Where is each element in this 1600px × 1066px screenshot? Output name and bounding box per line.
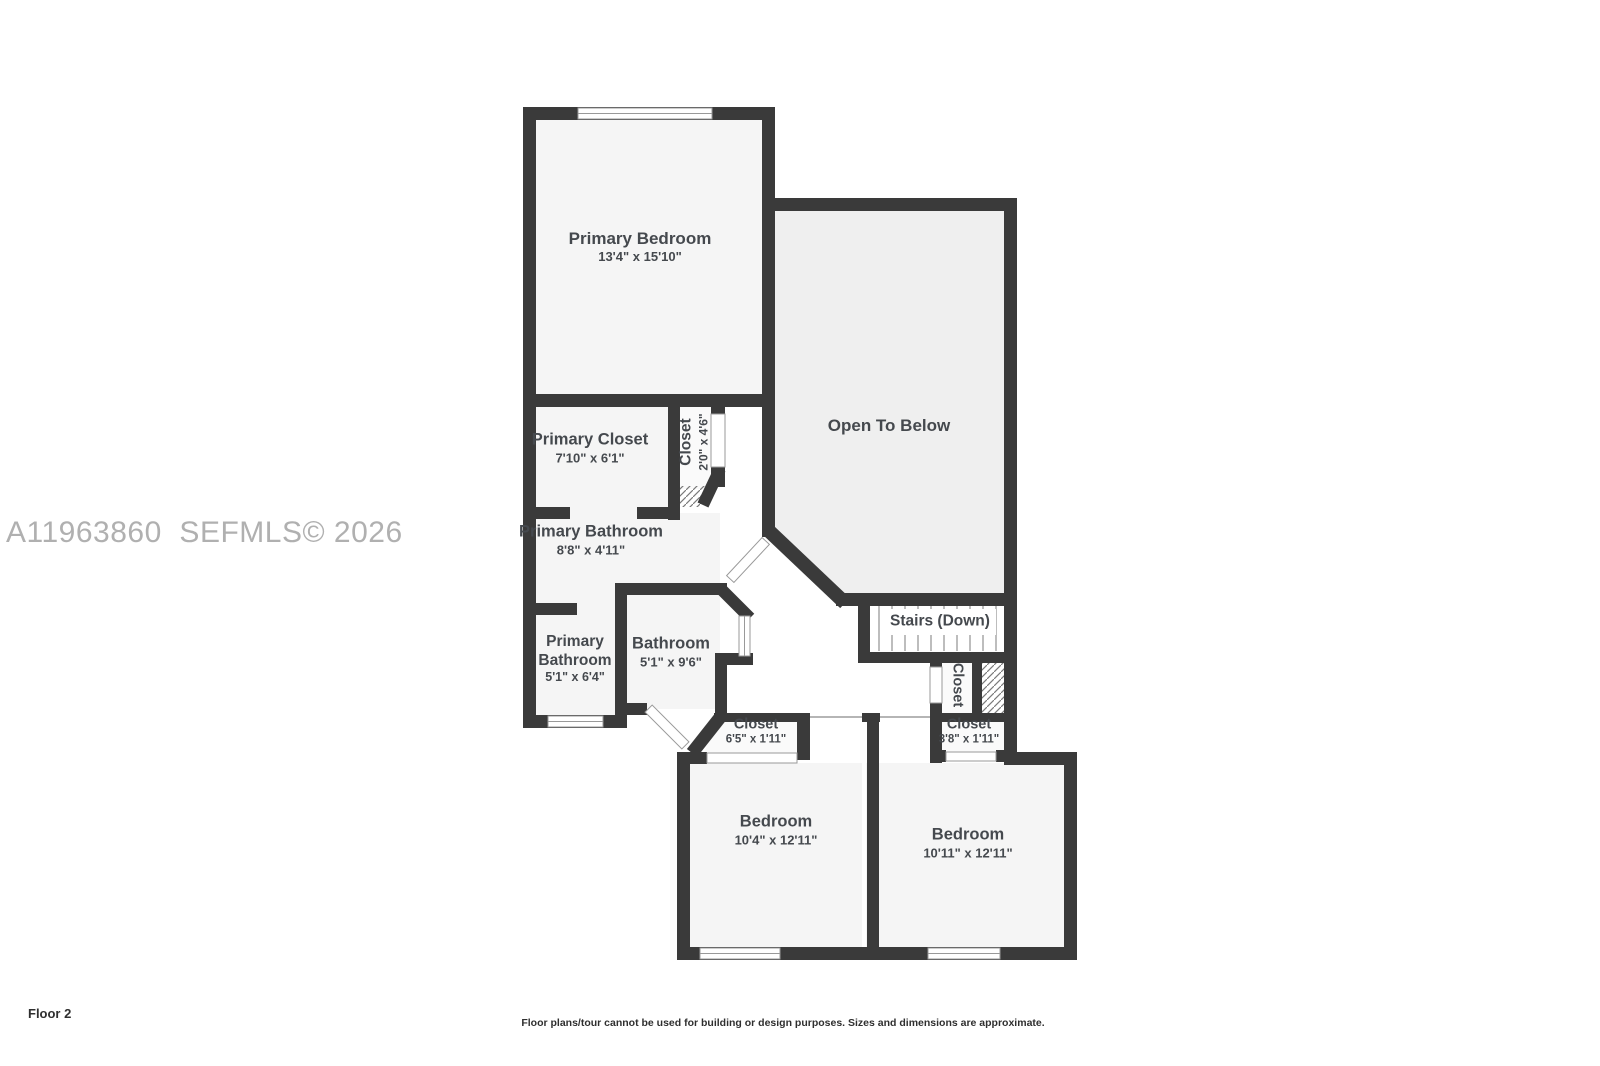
wall-segment (930, 657, 942, 667)
room-dims: 6'5" x 1'11" (726, 734, 787, 748)
open-to-below-floor (770, 204, 1010, 599)
sliding-door-symbol (707, 753, 797, 763)
room-dims: 3'8" x 1'11" (939, 734, 1000, 748)
closet-bedroom-label: Closet 3'8" x 1'11" (939, 714, 1000, 747)
wall-segment (858, 597, 870, 658)
room-dims: 10'11" x 12'11" (923, 845, 1012, 861)
stairs-label: Stairs (Down) (890, 613, 990, 632)
window-symbol (700, 948, 780, 959)
wall-segment (862, 713, 880, 722)
room-dims: 13'4" x 15'10" (569, 249, 712, 265)
primary-closet-label: Primary Closet 7'10" x 6'1" (532, 430, 648, 465)
open-to-below-label: Open To Below (828, 416, 950, 436)
primary-bedroom-label: Primary Bedroom 13'4" x 15'10" (569, 229, 712, 265)
room-dims: 5'1" x 9'6" (632, 654, 710, 670)
floor-plan-page: Primary Bedroom 13'4" x 15'10" Open To B… (0, 0, 1600, 1066)
wall-segment (615, 583, 727, 595)
bedroom-right-label: Bedroom 10'11" x 12'11" (923, 825, 1012, 860)
wall-segment (615, 703, 647, 715)
room-name: Bedroom (932, 825, 1004, 843)
door-symbol (711, 414, 725, 467)
room-name: Primary Bedroom (569, 229, 712, 248)
window-symbol (739, 616, 750, 656)
wall-segment (677, 752, 690, 960)
wall-segment (770, 198, 1017, 211)
room-dims: 2'0" x 4'6" (696, 413, 710, 470)
wall-segment (523, 603, 577, 615)
room-name: Closet (947, 716, 991, 732)
bedroom-left-label: Bedroom 10'4" x 12'11" (735, 812, 818, 847)
room-name: Bathroom (632, 634, 710, 652)
wall-segment (930, 703, 942, 715)
mls-watermark: A11963860 SEFMLS© 2026 (6, 516, 403, 550)
closet-hall-label: Closet 6'5" x 1'11" (726, 714, 787, 747)
primary-bathroom-upper-label: Primary Bathroom 8'8" x 4'11" (519, 522, 663, 557)
closet-stairs-label: Closet (948, 663, 965, 707)
wall-diagonal (720, 588, 750, 618)
room-name: Bedroom (740, 812, 812, 830)
disclaimer-text: Floor plans/tour cannot be used for buil… (521, 1017, 1044, 1029)
wall-segment (1004, 198, 1017, 765)
wall-segment (762, 107, 775, 537)
wall-segment (523, 107, 536, 728)
swing-door-symbol (727, 538, 770, 583)
room-dims: 5'1" x 6'4" (538, 670, 611, 685)
wall-segment (867, 713, 879, 960)
room-name: Closet (734, 716, 778, 732)
hatch-under-stairs (982, 658, 1004, 714)
wall-segment (972, 658, 982, 715)
wall-segment (711, 394, 725, 414)
wall-segment (637, 507, 680, 519)
closet-upper-label: Closet 2'0" x 4'6" (678, 413, 711, 470)
sliding-door-symbol (946, 752, 996, 761)
room-name: Primary Closet (532, 430, 648, 448)
room-name: Primary Bathroom (519, 522, 663, 540)
window-symbol (578, 108, 712, 119)
wall-segment (1064, 752, 1077, 960)
room-dims: 7'10" x 6'1" (532, 450, 648, 466)
room-name: Closet (678, 413, 697, 470)
room-dims: 8'8" x 4'11" (519, 542, 663, 558)
room-dims: 10'4" x 12'11" (735, 832, 818, 848)
wall-segment (615, 583, 627, 722)
swing-door-symbol (645, 705, 689, 749)
wall-segment (523, 507, 570, 519)
wall-segment (523, 394, 775, 407)
bedroom-left-floor (684, 763, 862, 953)
floor-number-label: Floor 2 (28, 1006, 71, 1021)
door-symbol (930, 667, 942, 703)
bathroom-label: Bathroom 5'1" x 9'6" (632, 634, 710, 669)
window-symbol (928, 948, 1000, 959)
primary-bathroom-lower-label: Primary Bathroom 5'1" x 6'4" (538, 633, 611, 685)
room-name: Primary Bathroom (538, 633, 611, 670)
wall-segment (930, 750, 946, 762)
wall-segment (797, 713, 810, 760)
window-symbol (548, 716, 603, 727)
